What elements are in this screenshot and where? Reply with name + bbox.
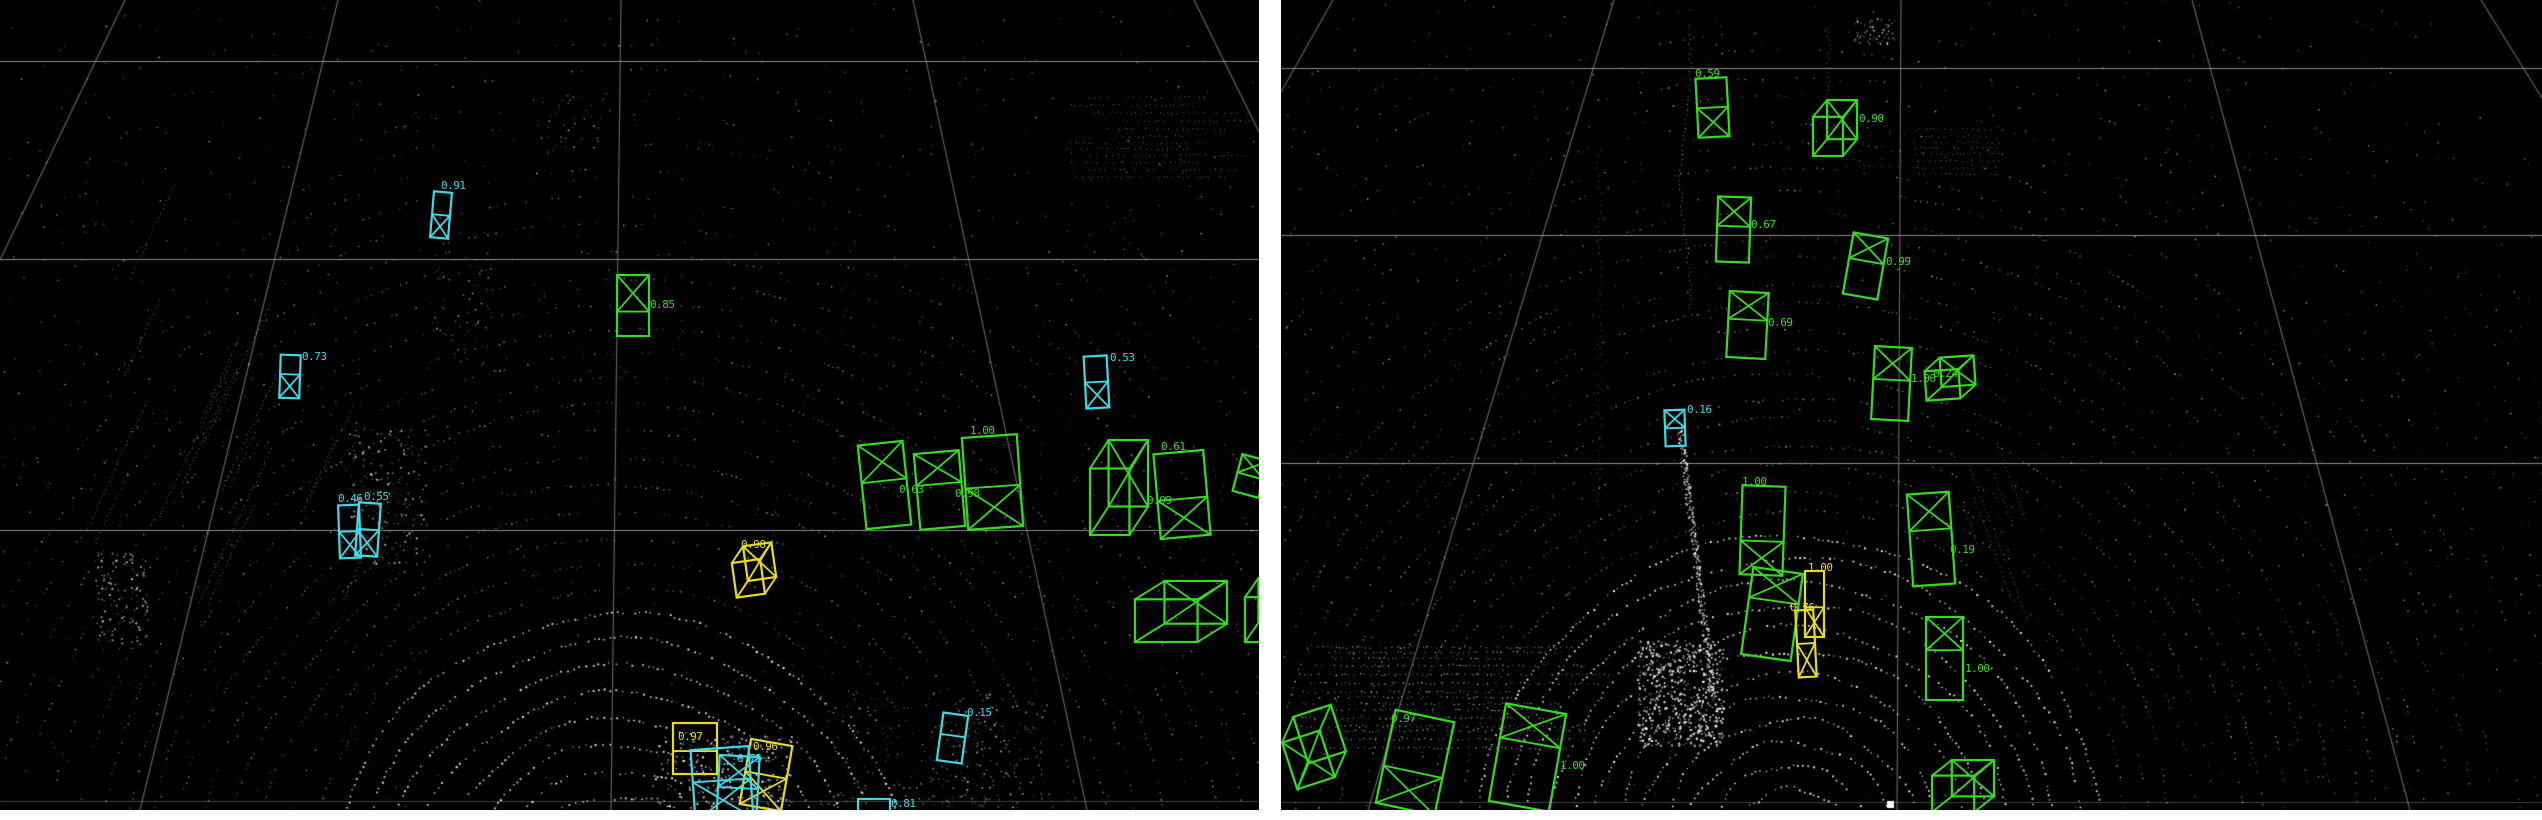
detection-box-green [1233,454,1259,498]
detection-box-green [1245,578,1259,642]
detection-box-cyan [355,502,381,556]
confidence-label: 0.99 [1147,494,1172,507]
detection-box-green [1489,703,1566,810]
detection-box-green [1932,760,1994,810]
confidence-label: 0.90 [1859,112,1884,125]
detection-box-green [1090,440,1148,535]
confidence-label: 0.91 [441,179,466,192]
detection-box-green [1741,567,1803,661]
confidence-label: 0.98 [741,538,766,551]
confidence-label: 0.81 [891,797,916,810]
confidence-label: 0.76 [1790,601,1815,614]
panel-right[interactable]: 0.590.900.670.990.691.000.240.191.000.16… [1281,0,2542,810]
confidence-label: 0.16 [1687,403,1712,416]
lidar-dual-view: 0.910.730.460.550.850.630.981.000.610.99… [0,0,2542,820]
detection-box-cyan [1084,355,1110,408]
confidence-label: 0.85 [650,298,675,311]
detection-box-cyan [937,712,968,763]
detection-box-green [1695,77,1729,138]
detection-box-green [1813,100,1857,156]
detection-box-green [1739,485,1785,575]
confidence-label: 0.59 [1695,67,1720,80]
confidence-label: 1.00 [970,424,995,437]
detection-box-green [1281,705,1352,789]
detection-box-cyan [858,799,890,810]
confidence-label: 0.69 [1768,316,1793,329]
confidence-label: 0.24 [1933,367,1958,380]
detection-box-green [1926,617,1963,700]
detections-overlay-right: 0.590.900.670.990.691.000.240.191.000.16… [1281,0,2542,810]
confidence-label: 0.97 [678,730,703,743]
detection-box-cyan [279,355,300,399]
confidence-label: 0.97 [1391,712,1416,725]
detection-box-cyan [1664,410,1685,447]
confidence-label: 0.19 [1950,543,1975,556]
confidence-label: 0.53 [1110,351,1135,364]
confidence-label: 0.15 [967,706,992,719]
confidence-label: 1.00 [1560,759,1585,772]
detections-overlay-left: 0.910.730.460.550.850.630.981.000.610.99… [0,0,1259,810]
detection-box-green [1726,291,1768,359]
detection-box-cyan [430,191,452,238]
confidence-label: 0.73 [302,350,327,363]
detection-box-green [962,434,1023,530]
confidence-label: 0.99 [1886,255,1911,268]
detection-box-green [1871,346,1912,421]
confidence-label: 1.00 [1742,475,1767,488]
confidence-label: 1.00 [1911,372,1936,385]
detection-box-green [617,275,649,336]
confidence-label: 1.00 [1808,561,1833,574]
detection-box-green [1135,581,1227,642]
detection-box-green [1843,232,1888,299]
confidence-label: 1.00 [1965,662,1990,675]
confidence-label: 0.67 [1751,218,1776,231]
detection-box-green [1907,492,1955,587]
detection-box-green [1716,196,1751,262]
panel-left[interactable]: 0.910.730.460.550.850.630.981.000.610.99… [0,0,1259,810]
confidence-label: 0.55 [364,490,389,503]
